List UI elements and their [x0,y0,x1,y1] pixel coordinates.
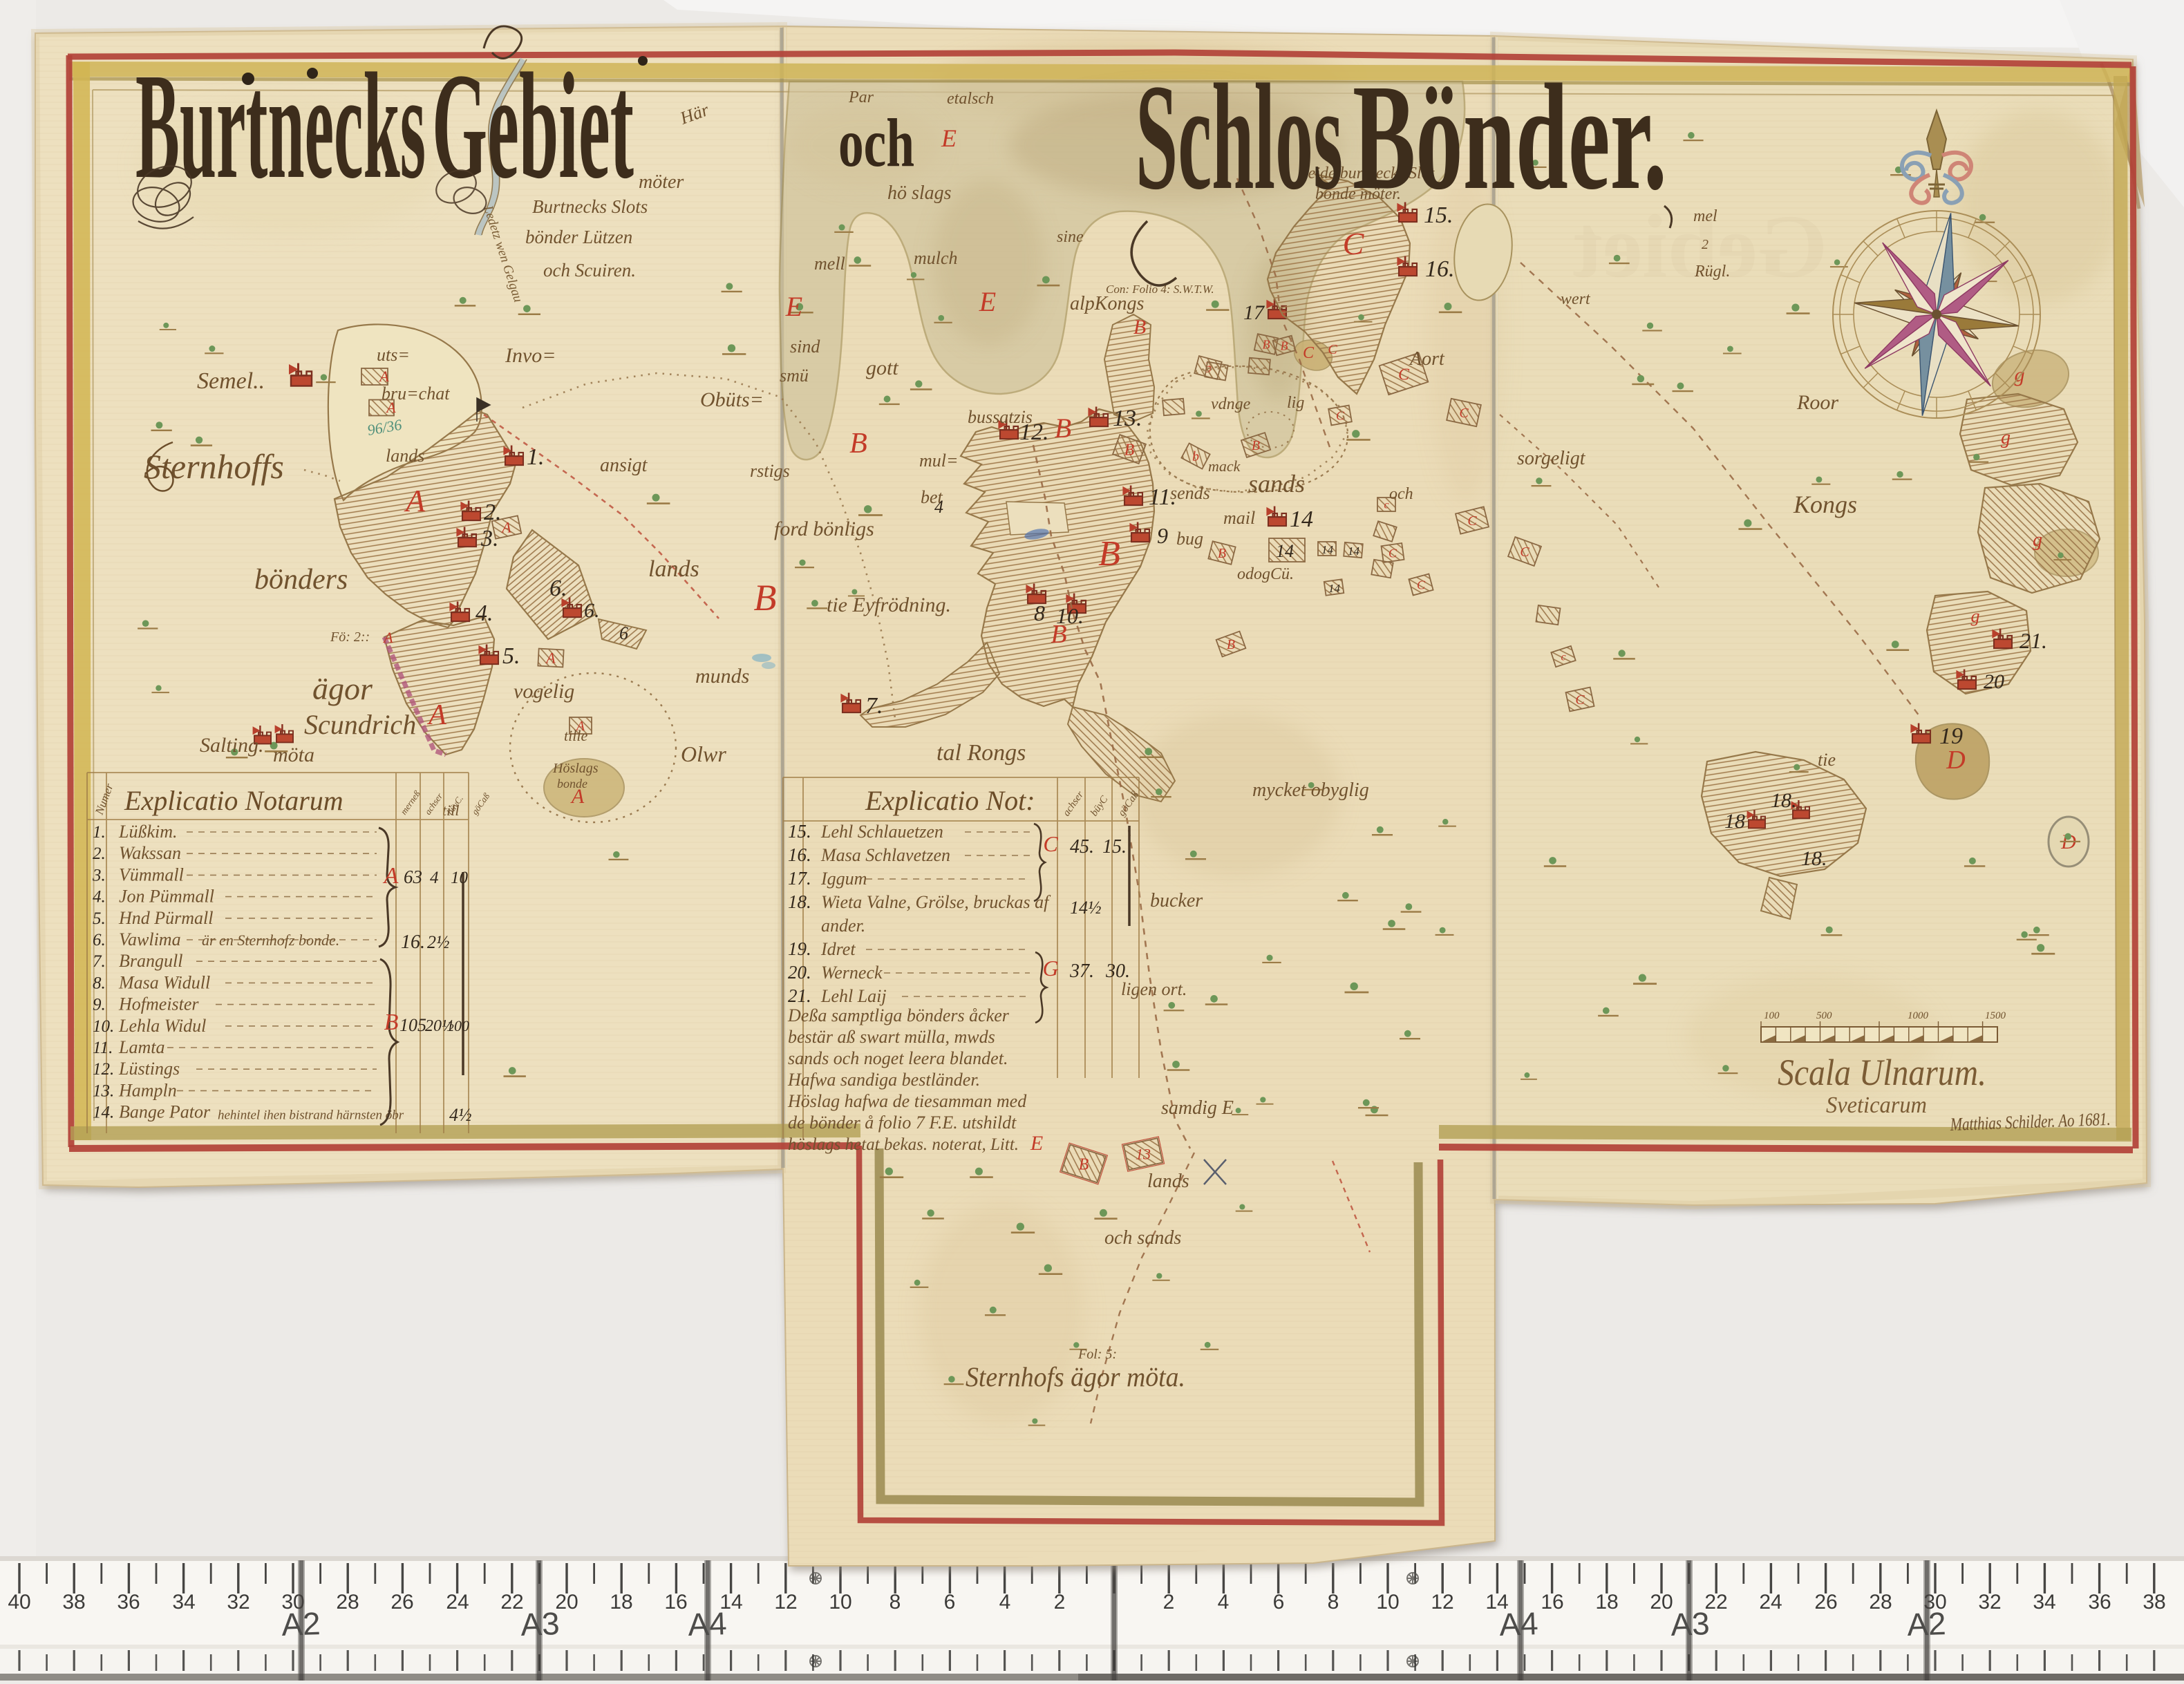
svg-text:6.: 6. [93,931,106,949]
svg-text:A3: A3 [520,1605,560,1643]
svg-text:1.: 1. [527,444,545,470]
svg-text:6: 6 [1273,1591,1285,1614]
svg-text:12: 12 [774,1591,797,1614]
svg-text:E: E [785,291,802,322]
svg-text:sind: sind [790,337,820,357]
svg-text:16.: 16. [788,844,811,865]
svg-text:7.: 7. [93,952,106,971]
svg-text:8: 8 [1034,600,1045,625]
svg-text:18.: 18. [788,891,811,912]
svg-text:lig: lig [1287,394,1304,412]
svg-text:9: 9 [1157,523,1168,548]
svg-text:B: B [1079,1155,1089,1173]
svg-text:bussatzis: bussatzis [968,407,1033,427]
svg-text:sands: sands [1248,470,1305,498]
svg-text:bönder Lützen: bönder Lützen [525,227,632,247]
svg-text:24: 24 [446,1591,469,1614]
svg-text:Vümmall: Vümmall [119,864,184,884]
svg-text:c: c [1384,500,1388,511]
svg-text:mul=: mul= [919,451,959,471]
svg-text:15.: 15. [1102,836,1127,858]
svg-text:34: 34 [2033,1591,2055,1614]
svg-text:Kongs: Kongs [1793,491,1857,518]
svg-text:40: 40 [8,1591,30,1614]
svg-text:Aort: Aort [1409,348,1445,370]
svg-text:Höslag hafwa de tiesamman med: Höslag hafwa de tiesamman med [787,1091,1027,1111]
svg-text:37.: 37. [1069,961,1094,982]
svg-text:32: 32 [1978,1591,2001,1614]
svg-text:20: 20 [1984,670,2004,693]
svg-text:4: 4 [999,1591,1011,1614]
svg-text:B: B [849,428,867,460]
svg-text:2: 2 [1163,1591,1175,1614]
svg-text:ansigt: ansigt [600,455,648,476]
svg-text:8: 8 [1328,1591,1339,1614]
svg-text:63: 63 [404,867,422,887]
svg-text:13.: 13. [93,1081,114,1100]
svg-text:Wieta Valne, Grölse, bruckas a: Wieta Valne, Grölse, bruckas af [821,892,1051,912]
svg-text:Explicatio Not:: Explicatio Not: [865,785,1035,816]
svg-text:26: 26 [1814,1591,1837,1614]
svg-text:Hofmeister: Hofmeister [118,994,199,1014]
svg-text:105: 105 [399,1015,426,1035]
svg-text:16.: 16. [401,931,425,953]
svg-text:och: och [838,104,914,181]
svg-text:bru=chat: bru=chat [382,384,450,404]
svg-text:C: C [1388,546,1397,560]
svg-text:7.: 7. [865,693,883,719]
svg-text:Bange Pator: Bange Pator [119,1102,211,1122]
svg-text:etalsch: etalsch [947,90,994,108]
svg-text:C: C [1575,692,1585,708]
svg-text:18.: 18. [1801,847,1827,870]
svg-text:2: 2 [1054,1591,1066,1614]
svg-text:höslags hetat bekas. noterat,: höslags hetat bekas. noterat, Litt. [788,1135,1019,1154]
svg-text:Scala Ulnarum.: Scala Ulnarum. [1778,1052,1986,1093]
svg-text:Olwr: Olwr [681,741,726,766]
svg-text:bestär aß swart mülla, mwds: bestär aß swart mülla, mwds [788,1027,995,1047]
svg-text:A: A [545,650,556,667]
svg-text:uts=: uts= [377,345,410,365]
svg-text:Hampln: Hampln [118,1080,177,1100]
svg-text:rstigs: rstigs [750,461,790,481]
svg-text:B: B [1098,534,1120,574]
svg-text:21.: 21. [2020,628,2047,653]
svg-text:är en Sternhofz bonde.: är en Sternhofz bonde. [202,931,339,949]
svg-text:100: 100 [446,1017,469,1034]
svg-text:5.: 5. [502,643,520,669]
svg-text:Salting.: Salting. [200,734,264,757]
svg-text:4: 4 [1218,1591,1230,1614]
svg-text:mulch: mulch [914,248,958,268]
svg-text:Gebiet: Gebiet [432,41,634,210]
svg-text:B: B [1051,620,1066,649]
svg-text:28: 28 [336,1591,359,1614]
svg-text:A: A [426,699,446,731]
svg-text:sends: sends [1170,483,1210,503]
svg-text:Schlos: Schlos [1136,53,1343,221]
svg-text:Jon Pümmall: Jon Pümmall [119,887,214,907]
svg-text:16: 16 [1541,1591,1563,1614]
svg-text:Fol: 5:: Fol: 5: [1077,1347,1117,1362]
svg-text:smü: smü [780,366,809,386]
svg-text:och Scuiren.: och Scuiren. [543,260,636,281]
svg-text:16.: 16. [1425,256,1455,282]
svg-text:18: 18 [1595,1591,1618,1614]
svg-text:Wakssan: Wakssan [119,843,181,863]
svg-text:B: B [1124,441,1135,459]
svg-text:14: 14 [1321,543,1334,556]
svg-text:B: B [1055,413,1071,444]
svg-text:Masa Schlavetzen: Masa Schlavetzen [820,845,950,865]
svg-text:24: 24 [1759,1591,1782,1614]
svg-text:Explicatio Notarum: Explicatio Notarum [124,785,343,816]
svg-text:1.: 1. [93,823,106,842]
svg-text:32: 32 [227,1591,250,1614]
svg-text:C: C [1328,342,1337,357]
svg-text:lands: lands [1147,1171,1189,1192]
svg-text:100: 100 [1764,1010,1780,1021]
svg-text:B: B [1263,337,1270,351]
svg-text:8: 8 [889,1591,901,1614]
svg-text:C: C [1343,226,1365,261]
svg-text:17: 17 [1243,301,1265,324]
svg-text:tie Eyfrödning.: tie Eyfrödning. [827,594,951,616]
svg-text:B: B [1252,438,1260,453]
svg-text:Lüstings: Lüstings [118,1059,180,1079]
svg-text:vdnge: vdnge [1211,395,1251,413]
svg-text:Masa Widull: Masa Widull [118,972,210,992]
svg-text:Fö: 2::: Fö: 2:: [330,630,370,645]
svg-text:Lehl Laij: Lehl Laij [820,986,887,1006]
svg-text:12.: 12. [93,1060,114,1079]
svg-text:4: 4 [934,497,943,517]
svg-text:Höslags: Höslags [552,761,599,776]
svg-text:C: C [1417,578,1426,592]
svg-text:14: 14 [1328,582,1341,595]
svg-text:hehintel ihen bistrand härnste: hehintel ihen bistrand härnsten öbr [218,1108,404,1123]
svg-text:Sternhofs ägor möta.: Sternhofs ägor möta. [966,1361,1185,1392]
svg-text:2½: 2½ [427,932,450,952]
svg-text:sine: sine [1057,228,1084,246]
svg-text:14: 14 [1348,545,1360,558]
svg-text:1000: 1000 [1908,1010,1929,1021]
svg-text:c: c [1561,652,1565,663]
svg-text:10.: 10. [93,1017,114,1036]
svg-text:B: B [384,1010,399,1035]
svg-text:21.: 21. [788,985,811,1006]
svg-text:C: C [1303,344,1315,362]
svg-text:19.: 19. [788,938,811,959]
svg-text:Scundrich: Scundrich [304,709,416,740]
svg-text:vogelig: vogelig [514,680,574,703]
svg-text:Roor: Roor [1796,391,1838,414]
svg-text:g: g [2001,427,2011,448]
svg-text:B: B [1133,316,1146,339]
svg-text:Iggum: Iggum [820,869,867,889]
svg-text:tie: tie [1818,750,1836,770]
svg-text:odogCü.: odogCü. [1237,565,1294,583]
svg-text:13: 13 [1136,1146,1151,1163]
svg-text:10: 10 [451,869,469,887]
svg-text:6.: 6. [549,576,567,601]
svg-text:Lüßkim.: Lüßkim. [118,822,178,842]
svg-text:A: A [570,785,585,808]
svg-text:C: C [1459,406,1469,421]
svg-text:Deßa samptliga bönders åcker: Deßa samptliga bönders åcker [787,1005,1010,1025]
svg-text:A2: A2 [281,1605,321,1643]
svg-text:E: E [1030,1132,1043,1155]
svg-text:mack: mack [1208,457,1241,475]
svg-text:g: g [2015,363,2025,386]
svg-text:bucker: bucker [1150,890,1203,911]
svg-text:15.: 15. [788,821,811,842]
svg-text:de bönder å folio 7 F.E. utshi: de bönder å folio 7 F.E. utshildt [788,1113,1017,1133]
svg-text:A: A [378,368,389,385]
svg-text:gott: gott [866,357,898,379]
svg-text:16: 16 [664,1591,687,1614]
svg-text:A: A [500,519,511,536]
svg-text:B: B [1281,339,1288,352]
svg-text:alpKongs: alpKongs [1070,293,1144,314]
svg-text:4.: 4. [476,600,493,626]
svg-text:2.: 2. [93,844,106,863]
svg-text:C: C [1520,545,1529,560]
svg-text:A: A [404,483,426,518]
svg-text:A4: A4 [687,1605,727,1643]
svg-text:38: 38 [2143,1591,2165,1614]
svg-text:45.: 45. [1070,836,1094,858]
svg-text:B: B [754,577,777,618]
svg-text:C: C [1043,831,1058,856]
svg-text:10: 10 [1376,1591,1399,1614]
svg-text:C: C [1336,408,1345,422]
svg-text:3.: 3. [480,526,499,551]
svg-text:18: 18 [1724,810,1745,833]
svg-text:500: 500 [1816,1010,1832,1021]
svg-text:E: E [941,124,957,152]
svg-text:ägor: ägor [312,671,373,706]
svg-text:Werneck: Werneck [821,963,883,983]
svg-text:A: A [383,863,399,889]
svg-text:ander.: ander. [821,916,865,936]
svg-text:g: g [1971,606,1980,626]
svg-text:20.: 20. [788,962,811,983]
svg-text:18.: 18. [1771,789,1797,812]
svg-text:14½: 14½ [1070,898,1102,918]
svg-text:12: 12 [1431,1591,1453,1614]
svg-text:4: 4 [430,869,439,887]
svg-text:C: C [1467,513,1477,529]
svg-text:möter: möter [639,171,684,193]
svg-text:möta: möta [273,744,314,766]
svg-text:36: 36 [2088,1591,2111,1614]
svg-text:4½: 4½ [449,1105,472,1125]
svg-text:Invo=: Invo= [505,344,556,367]
svg-text:sands och noget leera blandet.: sands och noget leera blandet. [788,1048,1008,1068]
svg-text:Brangull: Brangull [119,951,182,971]
svg-text:tille: tille [564,727,587,744]
svg-text:17.: 17. [788,868,811,889]
svg-text:b: b [1192,449,1199,464]
svg-text:mail: mail [1223,508,1255,528]
svg-text:g: g [2033,529,2042,551]
svg-text:Hafwa sandiga bestländer.: Hafwa sandiga bestländer. [787,1070,980,1090]
svg-text:11.: 11. [93,1039,113,1057]
svg-text:ford bönligs: ford bönligs [774,518,874,540]
svg-text:samdig E: samdig E [1161,1097,1234,1119]
svg-text:mycket obyglig: mycket obyglig [1252,779,1369,801]
svg-text:A3: A3 [1670,1605,1710,1643]
svg-text:Bönder.: Bönder. [1353,53,1667,221]
svg-text:Sveticarum: Sveticarum [1826,1092,1927,1118]
svg-text:sorgeligt: sorgeligt [1517,448,1586,469]
svg-text:lands: lands [648,556,699,582]
svg-text:hö slags: hö slags [887,182,952,204]
svg-text:5.: 5. [93,909,106,928]
svg-text:Hnd Pürmall: Hnd Pürmall [118,908,214,928]
svg-text:30.: 30. [1105,961,1130,982]
svg-text:6: 6 [944,1591,956,1614]
svg-text:A: A [382,629,393,646]
svg-text:13.: 13. [1113,406,1142,431]
svg-text:tal Rongs: tal Rongs [936,740,1026,766]
svg-text:bönders: bönders [254,564,348,596]
svg-text:6: 6 [619,623,628,643]
svg-text:Vawlima: Vawlima [119,929,181,949]
svg-text:Lamta: Lamta [118,1037,164,1057]
svg-text:A4: A4 [1498,1605,1538,1643]
svg-text:6.: 6. [584,599,600,622]
svg-text:Semel..: Semel.. [197,368,265,394]
svg-text:8.: 8. [93,974,106,992]
svg-text:28: 28 [1869,1591,1892,1614]
svg-text:4.: 4. [93,888,106,907]
svg-text:bug: bug [1176,529,1203,549]
svg-text:lands: lands [386,446,424,466]
svg-text:munds: munds [695,665,749,688]
svg-text:1500: 1500 [1985,1010,2006,1021]
svg-text:36: 36 [117,1591,140,1614]
svg-text:18: 18 [610,1591,632,1614]
svg-text:B: B [1218,546,1226,561]
svg-text:Idret: Idret [820,939,856,959]
svg-text:9.: 9. [93,996,106,1014]
svg-text:A2: A2 [1906,1605,1946,1643]
svg-text:2.: 2. [484,500,502,525]
svg-text:3.: 3. [92,866,106,884]
svg-text:Lehla Widul: Lehla Widul [118,1016,206,1036]
svg-text:14.: 14. [93,1104,114,1122]
svg-text:E: E [979,286,996,317]
svg-text:14: 14 [1290,507,1313,532]
svg-text:Lehl Schlauetzen: Lehl Schlauetzen [820,822,943,842]
svg-text:ligen ort.: ligen ort. [1121,979,1187,999]
svg-text:D: D [1946,746,1965,775]
svg-text:och sands: och sands [1104,1227,1181,1249]
svg-text:14: 14 [1276,541,1294,561]
svg-text:10: 10 [829,1591,851,1614]
svg-text:38: 38 [62,1591,85,1614]
svg-text:C: C [1398,366,1410,384]
svg-text:26: 26 [390,1591,413,1614]
svg-text:och: och [1389,485,1413,503]
svg-text:Burtnecks: Burtnecks [135,41,426,210]
svg-text:mell: mell [814,254,845,274]
svg-text:Obüts=: Obüts= [700,388,764,411]
svg-text:G: G [1042,956,1058,981]
svg-text:B: B [1227,637,1235,652]
svg-text:34: 34 [172,1591,195,1614]
